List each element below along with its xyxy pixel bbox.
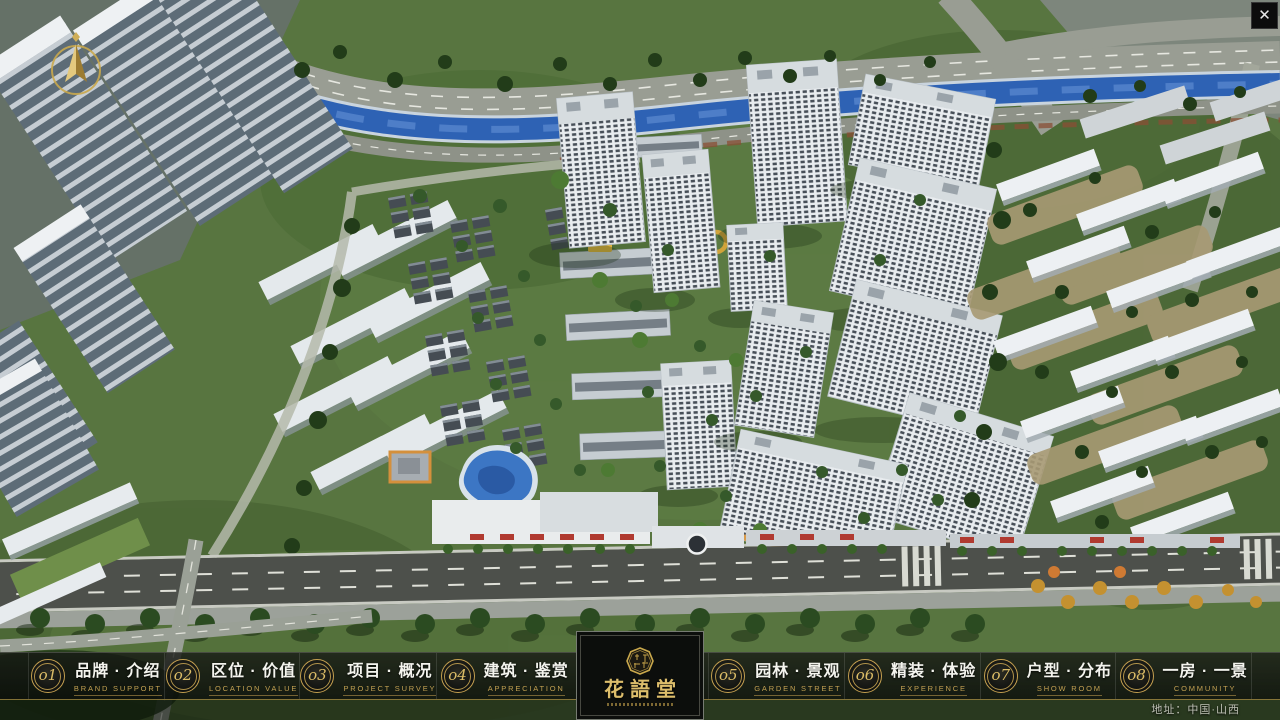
project-logo[interactable]: 花語堂 [576, 631, 704, 720]
nav-group-left: o1 品牌 · 介绍 BRAND SUPPORT o2 区位 · 价值 LOCA… [28, 653, 572, 699]
nav-label-en: COMMUNITY [1174, 684, 1236, 696]
nav-label-en: APPRECIATION [488, 684, 565, 696]
nav-item-floorplan-distribution[interactable]: o7 户型 · 分布 SHOW ROOM [980, 653, 1116, 699]
nav-number-badge: o3 [300, 659, 334, 693]
nav-label-zh: 项目 · 概况 [347, 657, 432, 681]
masterplan-screen: ✕ o1 品牌 · 介绍 BRAND SUPPORT o2 区位 · 价值 LO… [0, 0, 1280, 720]
nav-number-badge: o2 [166, 659, 200, 693]
nav-labels: 精装 · 体验 EXPERIENCE [891, 657, 976, 696]
clubhouse [390, 452, 430, 482]
nav-number-badge: o7 [984, 659, 1018, 693]
nav-number: o2 [174, 666, 193, 684]
nav-label-zh: 精装 · 体验 [891, 657, 976, 681]
close-button[interactable]: ✕ [1251, 2, 1278, 29]
logo-tagline [607, 703, 673, 706]
nav-item-one-room-one-view[interactable]: o8 一房 · 一景 COMMUNITY [1115, 653, 1252, 699]
nav-label-zh: 园林 · 景观 [755, 657, 840, 681]
nav-item-brand-intro[interactable]: o1 品牌 · 介绍 BRAND SUPPORT [28, 653, 164, 699]
nav-labels: 项目 · 概况 PROJECT SURVEY [343, 657, 436, 696]
nav-label-zh: 品牌 · 介绍 [75, 657, 160, 681]
nav-item-location-value[interactable]: o2 区位 · 价值 LOCATION VALUE [164, 653, 300, 699]
address-text: 地址：中国·山西 [1151, 701, 1240, 717]
nav-label-en: PROJECT SURVEY [343, 684, 436, 696]
nav-number: o3 [308, 666, 327, 684]
brand-name: 花語堂 [598, 678, 682, 700]
nav-item-garden-landscape[interactable]: o5 园林 · 景观 GARDEN STREET [708, 653, 844, 699]
nav-number: o8 [1127, 666, 1146, 684]
nav-item-interior-experience[interactable]: o6 精装 · 体验 EXPERIENCE [844, 653, 980, 699]
nav-labels: 户型 · 分布 SHOW ROOM [1027, 657, 1112, 696]
nav-label-zh: 一房 · 一景 [1163, 657, 1248, 681]
close-icon: ✕ [1258, 8, 1271, 23]
nav-label-zh: 建筑 · 鉴赏 [484, 657, 569, 681]
nav-label-en: LOCATION VALUE [209, 684, 298, 696]
nav-number: o1 [39, 666, 58, 684]
nav-item-architecture[interactable]: o4 建筑 · 鉴赏 APPRECIATION [436, 653, 572, 699]
seal-icon [625, 646, 655, 676]
nav-label-zh: 户型 · 分布 [1027, 657, 1112, 681]
nav-item-project-overview[interactable]: o3 项目 · 概况 PROJECT SURVEY [299, 653, 436, 699]
nav-label-en: GARDEN STREET [754, 684, 841, 696]
nav-labels: 一房 · 一景 COMMUNITY [1163, 657, 1248, 696]
nav-labels: 建筑 · 鉴赏 APPRECIATION [484, 657, 569, 696]
nav-label-zh: 区位 · 价值 [211, 657, 296, 681]
nav-number: o6 [856, 666, 875, 684]
nav-labels: 区位 · 价值 LOCATION VALUE [209, 657, 298, 696]
nav-number-badge: o6 [848, 659, 882, 693]
nav-label-en: BRAND SUPPORT [74, 684, 162, 696]
nav-number-badge: o1 [31, 659, 65, 693]
nav-number-badge: o5 [711, 659, 745, 693]
nav-group-right: o5 园林 · 景观 GARDEN STREET o6 精装 · 体验 EXPE… [708, 653, 1252, 699]
nav-number-badge: o4 [441, 659, 475, 693]
nav-number-badge: o8 [1120, 659, 1154, 693]
nav-labels: 园林 · 景观 GARDEN STREET [754, 657, 841, 696]
nav-number: o7 [991, 666, 1010, 684]
nav-label-en: SHOW ROOM [1037, 684, 1102, 696]
nav-number: o4 [448, 666, 467, 684]
nav-number: o5 [719, 666, 738, 684]
nav-labels: 品牌 · 介绍 BRAND SUPPORT [74, 657, 162, 696]
aerial-render [0, 0, 1280, 720]
nav-label-en: EXPERIENCE [900, 684, 966, 696]
